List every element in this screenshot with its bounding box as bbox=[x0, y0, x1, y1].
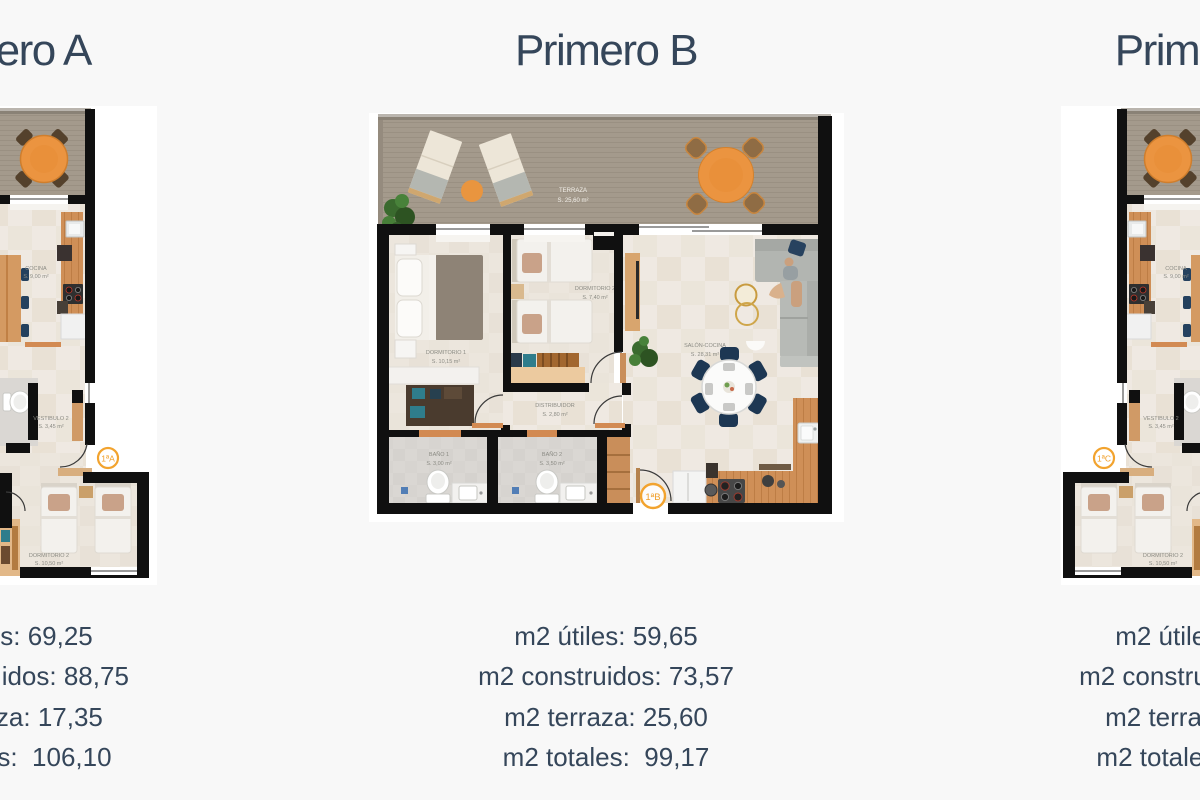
svg-text:S. 10,50 m²: S. 10,50 m² bbox=[35, 561, 64, 567]
svg-text:DORMITORIO 2: DORMITORIO 2 bbox=[575, 286, 615, 292]
svg-text:S. 3,00 m²: S. 3,00 m² bbox=[426, 461, 452, 467]
svg-text:S. 7,40 m²: S. 7,40 m² bbox=[582, 295, 608, 301]
svg-text:DORMITORIO 2: DORMITORIO 2 bbox=[1143, 553, 1183, 559]
svg-text:1ªC: 1ªC bbox=[1097, 454, 1111, 464]
svg-text:S. 25,60 m²: S. 25,60 m² bbox=[557, 198, 588, 204]
svg-text:S. 3,45 m²: S. 3,45 m² bbox=[38, 424, 64, 430]
svg-text:S. 3,45 m²: S. 3,45 m² bbox=[1148, 424, 1174, 430]
svg-text:BAÑO 1: BAÑO 1 bbox=[429, 451, 449, 458]
svg-text:DORMITORIO 1: DORMITORIO 1 bbox=[426, 350, 466, 356]
svg-text:S. 10,50 m²: S. 10,50 m² bbox=[1149, 561, 1178, 567]
svg-text:S. 2,80 m²: S. 2,80 m² bbox=[542, 412, 568, 418]
svg-text:1ªA: 1ªA bbox=[101, 454, 115, 464]
svg-text:VESTIBULO 2: VESTIBULO 2 bbox=[1143, 416, 1178, 422]
svg-text:1ªB: 1ªB bbox=[645, 492, 660, 503]
svg-text:VESTIBULO 2: VESTIBULO 2 bbox=[33, 416, 68, 422]
svg-text:DISTRIBUIDOR: DISTRIBUIDOR bbox=[535, 403, 574, 409]
svg-text:TERRAZA: TERRAZA bbox=[559, 188, 587, 194]
svg-text:SALÓN-COCINA: SALÓN-COCINA bbox=[684, 342, 726, 349]
svg-text:S. 9,00 m²: S. 9,00 m² bbox=[1163, 274, 1189, 280]
svg-text:BAÑO 2: BAÑO 2 bbox=[542, 451, 562, 458]
svg-text:S. 3,50 m²: S. 3,50 m² bbox=[539, 461, 565, 467]
svg-text:COCINA: COCINA bbox=[1165, 266, 1187, 272]
svg-text:COCINA: COCINA bbox=[25, 266, 47, 272]
svg-text:S. 9,00 m²: S. 9,00 m² bbox=[23, 274, 49, 280]
svg-text:S. 28,31 m²: S. 28,31 m² bbox=[691, 352, 720, 358]
svg-text:S. 10,15 m²: S. 10,15 m² bbox=[432, 359, 461, 365]
svg-text:DORMITORIO 2: DORMITORIO 2 bbox=[29, 553, 69, 559]
